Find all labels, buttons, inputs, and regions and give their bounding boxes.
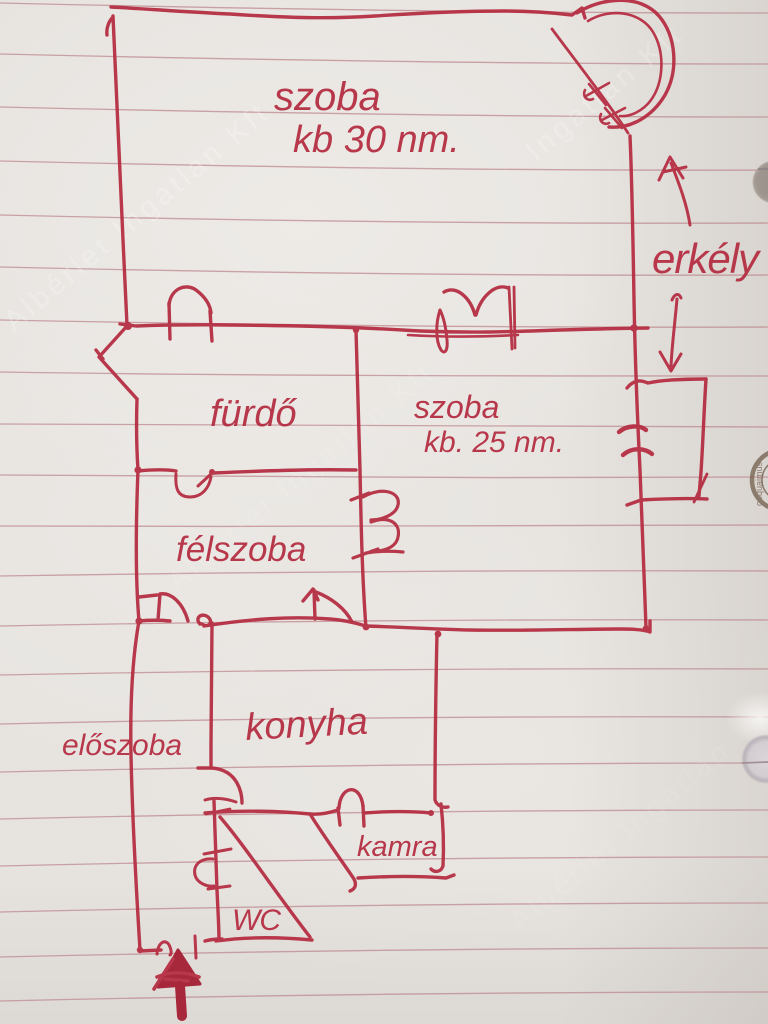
svg-text:kamra: kamra [357,831,438,863]
svg-text:fürdő: fürdő [210,393,297,435]
svg-text:WC: WC [232,904,281,937]
svg-text:ooquaimus: ooquaimus [754,461,764,506]
svg-text:szoba: szoba [414,389,499,425]
svg-text:erkély: erkély [652,235,762,282]
svg-text:félszoba: félszoba [176,530,306,569]
svg-text:kb 30 nm.: kb 30 nm. [293,119,460,161]
svg-text:konyha: konyha [244,701,369,749]
svg-text:előszoba: előszoba [62,729,182,762]
svg-text:szoba: szoba [274,75,381,119]
svg-text:kb. 25 nm.: kb. 25 nm. [424,426,564,459]
